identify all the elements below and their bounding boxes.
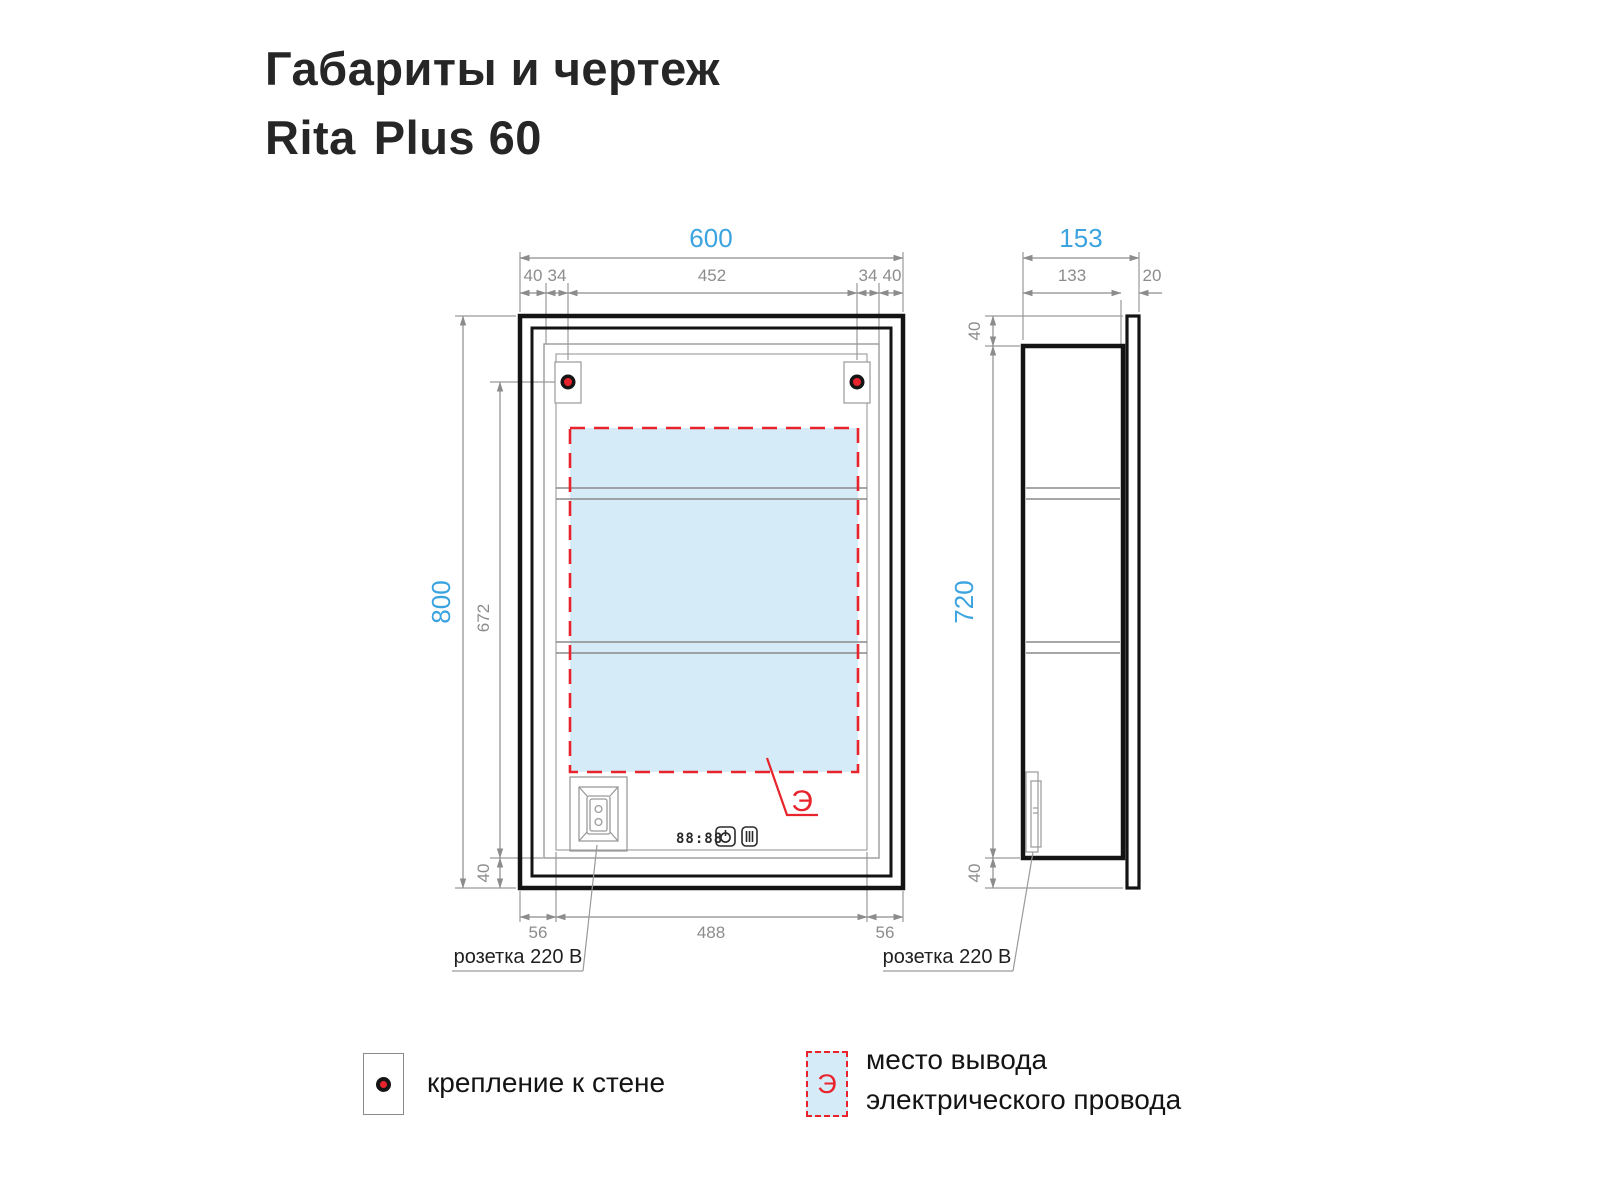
front-seg-40-left: 40	[524, 266, 543, 285]
front-bottom-offset-dim: 40	[474, 864, 493, 883]
electric-zone-fill	[570, 428, 858, 772]
front-seg-452: 452	[698, 266, 726, 285]
side-offset-bottom-dim: 40	[965, 864, 984, 883]
mount-points	[555, 362, 870, 403]
legend-mount-symbol	[363, 1053, 404, 1115]
side-socket-label: розетка 220 В	[883, 946, 1012, 968]
side-body-depth-dim: 133	[1058, 266, 1086, 285]
electric-mark: Э	[791, 785, 813, 818]
legend-electric-label: место вывода электрического провода	[866, 1040, 1181, 1120]
legend-electric-symbol: Э	[806, 1051, 848, 1117]
legend-mount-label: крепление к стене	[427, 1067, 665, 1099]
mount-pin-icon-core	[380, 1081, 387, 1088]
side-door-depth-dim: 20	[1143, 266, 1162, 285]
front-seg-34-left: 34	[548, 266, 567, 285]
front-seg-34-right: 34	[859, 266, 878, 285]
defog-icon	[742, 827, 757, 846]
side-door-outline	[1127, 316, 1139, 888]
front-inner-height-dim: 672	[474, 604, 493, 632]
front-view: 600 40 34 452 34 40 800 672 40 56 488 56	[426, 223, 903, 971]
side-shelves	[1026, 488, 1120, 653]
legend-electric-mark: Э	[817, 1069, 836, 1100]
side-height-dim: 720	[949, 580, 979, 623]
legend-electric-line1: место вывода	[866, 1040, 1181, 1080]
technical-drawing: 600 40 34 452 34 40 800 672 40 56 488 56	[0, 0, 1600, 1200]
front-socket-label: розетка 220 В	[454, 946, 583, 968]
drawing-page: Габариты и чертеж RitaPlus 60	[0, 0, 1600, 1200]
front-bottom-56-left: 56	[529, 923, 548, 942]
legend-electric-line2: электрического провода	[866, 1080, 1181, 1120]
display-panel: 88:88	[676, 827, 757, 847]
mount-pin-right-core	[853, 378, 861, 386]
side-view: 153 133 20 40 720 40	[883, 223, 1162, 971]
front-bottom-56-right: 56	[876, 923, 895, 942]
front-socket-symbol	[570, 777, 627, 851]
mount-pin-icon	[376, 1077, 391, 1092]
front-width-dim: 600	[689, 223, 732, 253]
side-offset-top-dim: 40	[965, 322, 984, 341]
side-socket-symbol	[1026, 772, 1041, 852]
front-bottom-488: 488	[697, 923, 725, 942]
side-depth-dim: 153	[1059, 223, 1102, 253]
front-height-dim: 800	[426, 580, 456, 623]
mount-pin-left-core	[564, 378, 572, 386]
front-seg-40-right: 40	[883, 266, 902, 285]
